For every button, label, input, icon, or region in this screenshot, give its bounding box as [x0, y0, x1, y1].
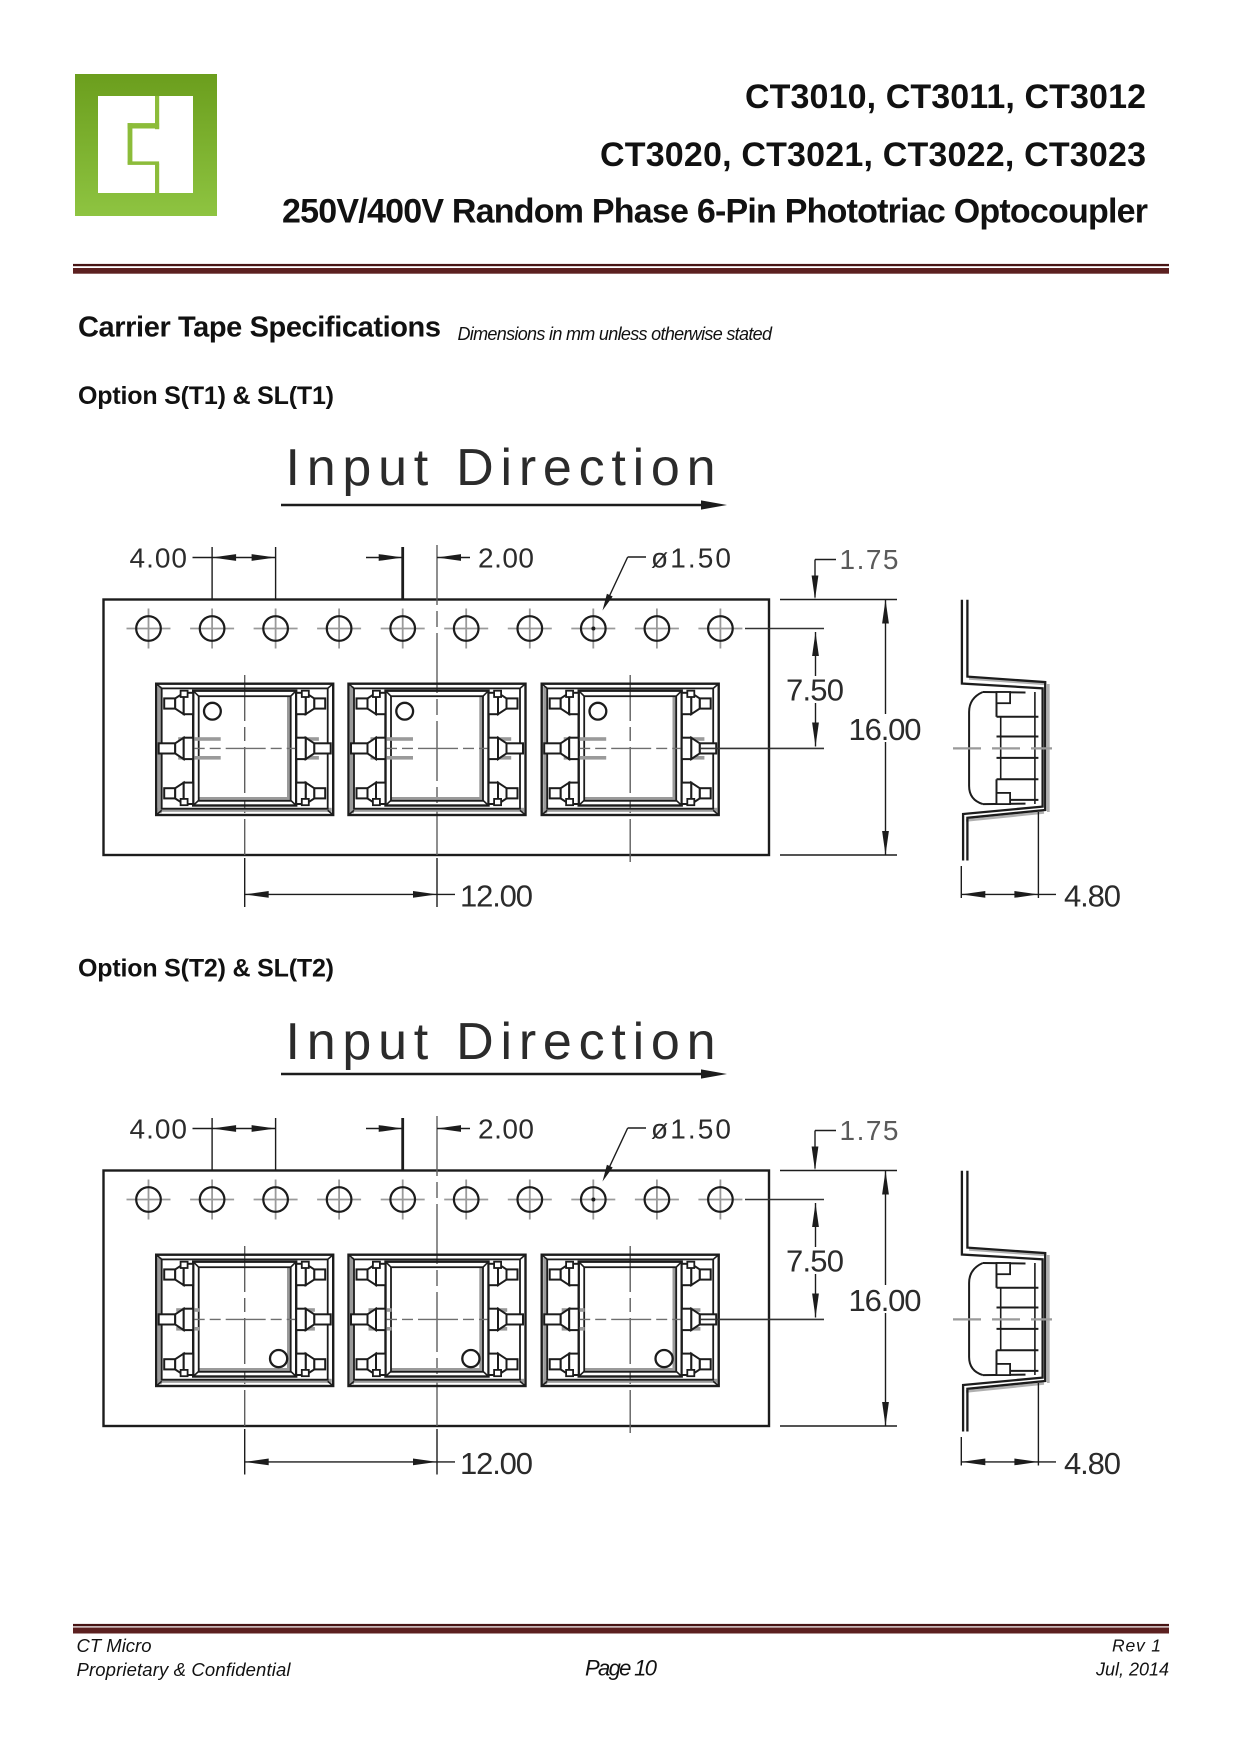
svg-text:7.50: 7.50 [786, 1244, 844, 1279]
svg-text:Input Direction: Input Direction [286, 439, 716, 497]
svg-text:CT3010, CT3011, CT3012: CT3010, CT3011, CT3012 [745, 78, 1146, 116]
svg-text:2.00: 2.00 [478, 1114, 534, 1145]
svg-text:12.00: 12.00 [460, 1446, 533, 1481]
svg-text:16.00: 16.00 [849, 1283, 922, 1318]
svg-text:1.75: 1.75 [840, 1115, 899, 1146]
svg-text:CT Micro: CT Micro [77, 1635, 152, 1656]
svg-text:Page 10: Page 10 [585, 1656, 658, 1681]
svg-text:Dimensions in mm unless otherw: Dimensions in mm unless otherwise stated [458, 324, 773, 344]
svg-text:12.00: 12.00 [460, 879, 533, 914]
svg-text:250V/400V Random Phase 6-Pin P: 250V/400V Random Phase 6-Pin Phototriac … [282, 193, 1148, 231]
svg-text:Jul, 2014: Jul, 2014 [1095, 1660, 1169, 1680]
svg-text:4.00: 4.00 [130, 543, 188, 574]
svg-text:Option S(T2) & SL(T2): Option S(T2) & SL(T2) [78, 955, 334, 983]
svg-text:Option S(T1) & SL(T1): Option S(T1) & SL(T1) [78, 382, 334, 410]
svg-text:Rev 1: Rev 1 [1112, 1636, 1161, 1656]
svg-text:Input Direction: Input Direction [286, 1013, 716, 1071]
svg-text:4.80: 4.80 [1064, 879, 1121, 914]
svg-text:ø1.50: ø1.50 [651, 543, 731, 574]
svg-text:4.80: 4.80 [1064, 1446, 1121, 1481]
svg-text:16.00: 16.00 [849, 712, 922, 747]
svg-text:2.00: 2.00 [478, 543, 534, 574]
svg-text:CT3020, CT3021, CT3022, CT3023: CT3020, CT3021, CT3022, CT3023 [600, 136, 1146, 174]
svg-text:Carrier Tape Specifications: Carrier Tape Specifications [78, 312, 441, 344]
svg-text:7.50: 7.50 [786, 673, 844, 708]
svg-text:ø1.50: ø1.50 [651, 1114, 731, 1145]
svg-text:Proprietary & Confidential: Proprietary & Confidential [77, 1659, 292, 1680]
svg-text:4.00: 4.00 [130, 1114, 188, 1145]
svg-text:1.75: 1.75 [840, 544, 899, 575]
